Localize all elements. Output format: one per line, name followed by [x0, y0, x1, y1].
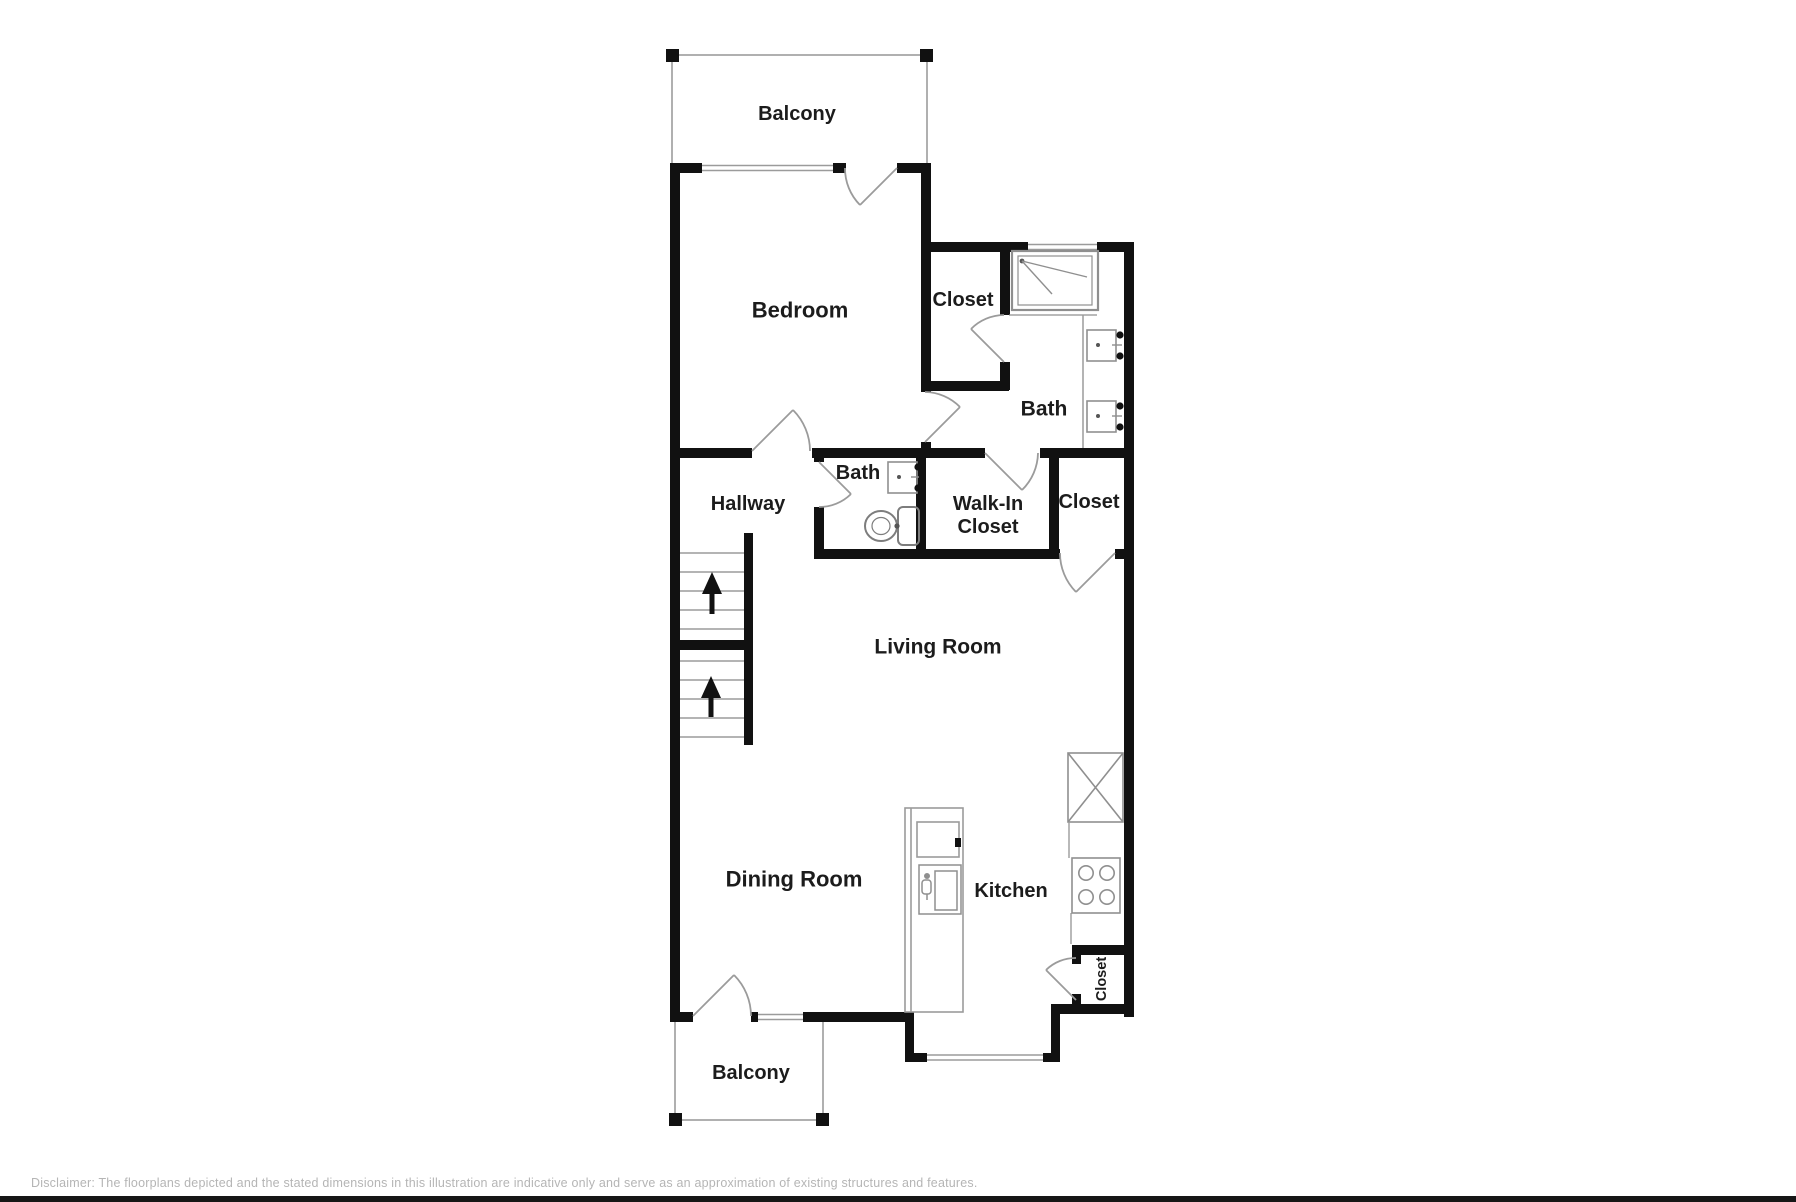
bath-top-label: Bath [1021, 398, 1068, 421]
hallway-label: Hallway [711, 493, 786, 515]
kitchen-label: Kitchen [974, 880, 1047, 902]
dining-balcony-door [693, 975, 751, 1016]
toilet-icon [865, 507, 919, 545]
refrigerator-icon [1068, 753, 1123, 822]
sink-icon [888, 462, 922, 493]
bedroom-balcony-door [845, 168, 897, 205]
kitchen-sink-icon [919, 865, 961, 914]
bedroom-window [702, 163, 833, 173]
walk-in-closet-label-line2: Closet [957, 516, 1018, 538]
bedroom-label: Bedroom [752, 298, 849, 323]
bedroom-hallway-door [752, 410, 810, 451]
walk-in-closet-label-line1: Walk-In [953, 493, 1023, 515]
kitchen-closet-door [1046, 958, 1076, 1000]
mid-closet-door [1060, 553, 1115, 592]
walk-in-closet-door [985, 453, 1038, 490]
shower-icon [1009, 251, 1098, 315]
floor-plan-page: Balcony Bedroom Closet Bath Hallway Bath… [0, 0, 1796, 1202]
bedroom-bath-door [925, 392, 960, 442]
floor-plan: Balcony Bedroom Closet Bath Hallway Bath… [0, 0, 1796, 1202]
stairs-up-arrow-icon [701, 676, 721, 717]
dining-room-label: Dining Room [726, 867, 863, 892]
entry-threshold [927, 1053, 1043, 1062]
dining-window [758, 1012, 803, 1022]
top-closet-door [971, 315, 1004, 362]
stove-icon [1072, 858, 1120, 913]
walls [670, 163, 1134, 1062]
disclaimer-text: Disclaimer: The floorplans depicted and … [31, 1176, 978, 1190]
bottom-edge-bar [0, 1196, 1796, 1202]
balcony-top-label: Balcony [758, 103, 837, 125]
stairs-up-arrow-icon [702, 572, 722, 614]
closet-top-label: Closet [932, 289, 993, 311]
kitchen-counter [1069, 822, 1071, 944]
bath-mid-label: Bath [836, 462, 880, 484]
closet-small-label: Closet [1094, 957, 1110, 1001]
living-room-label: Living Room [874, 636, 1001, 659]
balcony-bottom-label: Balcony [712, 1062, 791, 1084]
sink-icon [1087, 330, 1124, 361]
closet-mid-label: Closet [1058, 491, 1119, 513]
sink-icon [1087, 401, 1124, 432]
